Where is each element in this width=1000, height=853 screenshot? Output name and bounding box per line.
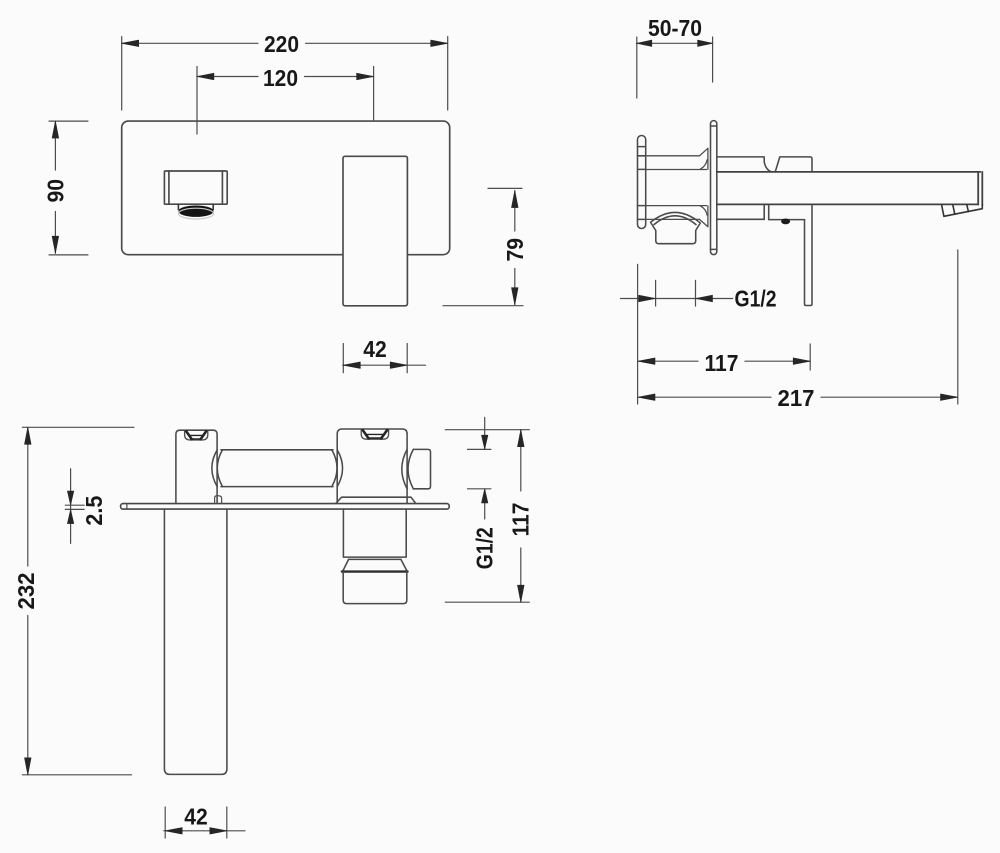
svg-text:42: 42 xyxy=(363,336,387,362)
svg-text:220: 220 xyxy=(264,31,299,57)
svg-text:232: 232 xyxy=(13,573,39,610)
svg-text:117: 117 xyxy=(507,503,533,537)
svg-text:G1/2: G1/2 xyxy=(472,527,498,569)
svg-text:217: 217 xyxy=(778,385,815,411)
svg-text:G1/2: G1/2 xyxy=(735,285,777,311)
svg-text:42: 42 xyxy=(184,803,208,829)
svg-text:50-70: 50-70 xyxy=(648,15,702,41)
svg-text:120: 120 xyxy=(263,65,298,91)
svg-text:79: 79 xyxy=(502,238,528,262)
svg-text:90: 90 xyxy=(43,179,69,203)
svg-text:2.5: 2.5 xyxy=(81,495,107,525)
svg-text:117: 117 xyxy=(705,350,739,376)
